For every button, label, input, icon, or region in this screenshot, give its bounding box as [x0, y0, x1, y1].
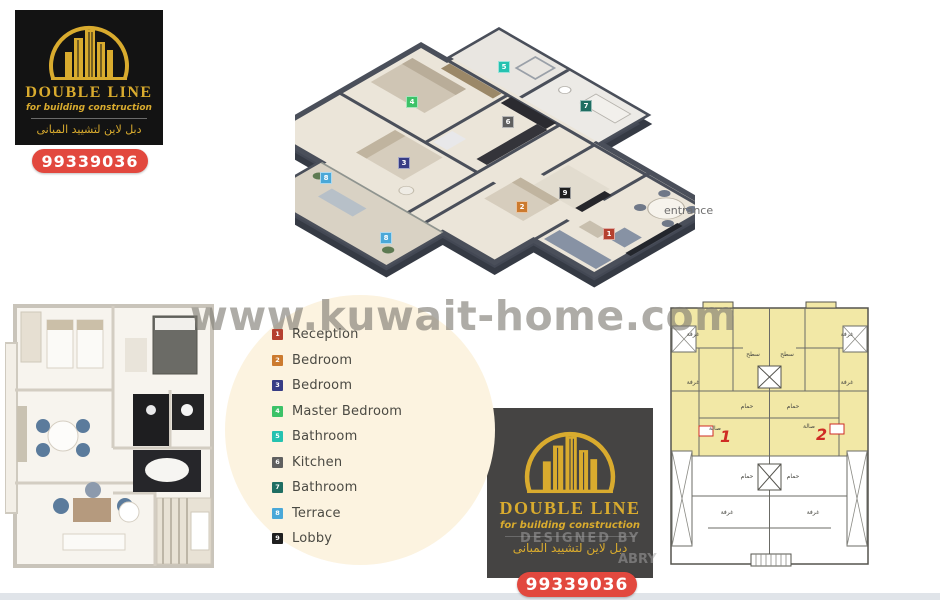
legend-swatch-3: 3 — [272, 380, 283, 391]
legend-swatch-5: 5 — [272, 431, 283, 442]
divider — [31, 118, 146, 119]
stairs — [157, 498, 211, 564]
brand-tagline: for building construction — [26, 103, 152, 113]
legend-item-bathroom-7: 7 Bathroom — [272, 482, 402, 494]
room-badge-master-bedroom: 4 — [406, 96, 418, 108]
brand-logo-top: DOUBLE LINE for building construction دب… — [15, 10, 163, 145]
unit-number-1: 1 — [720, 427, 731, 446]
legend-swatch-1: 1 — [272, 329, 283, 340]
svg-text:صالة: صالة — [709, 425, 721, 432]
svg-text:غرفة: غرفة — [841, 331, 854, 338]
unit2-stamp — [830, 424, 844, 434]
balcony-strip — [5, 343, 17, 513]
skyline-icon-2 — [518, 420, 622, 496]
svg-text:حمام: حمام — [787, 473, 800, 480]
brand-name: DOUBLE LINE — [25, 84, 152, 102]
room-badge-bathroom-5: 5 — [498, 61, 510, 73]
legend-item-reception: 1 Reception — [272, 329, 402, 341]
phone-number-bottom: 99339036 — [517, 572, 637, 597]
legend-swatch-6: 6 — [272, 457, 283, 468]
room-badge-bedroom-3: 3 — [398, 157, 410, 169]
bottom-edge-strip — [0, 593, 940, 600]
room-badge-kitchen: 6 — [502, 116, 514, 128]
svg-text:حمام: حمام — [741, 473, 754, 480]
svg-text:حمام: حمام — [741, 403, 754, 410]
designer-watermark-line2: ABRY — [618, 552, 657, 567]
legend-item-kitchen: 6 Kitchen — [272, 457, 402, 469]
legend-label-6: Kitchen — [292, 455, 342, 470]
room-badge-lobby: 9 — [559, 187, 571, 199]
legend-label-9: Lobby — [292, 531, 332, 546]
legend-label-3: Bedroom — [292, 378, 352, 393]
legend-item-terrace: 8 Terrace — [272, 508, 402, 520]
legend-item-lobby: 9 Lobby — [272, 533, 402, 545]
legend-item-bedroom-3: 3 Bedroom — [272, 380, 402, 392]
svg-text:غرفة: غرفة — [807, 509, 820, 516]
svg-text:حمام: حمام — [787, 403, 800, 410]
svg-text:سطح: سطح — [780, 351, 794, 358]
legend-label-2: Bedroom — [292, 353, 352, 368]
legend-item-bathroom-5: 5 Bathroom — [272, 431, 402, 443]
legend-label-8: Terrace — [292, 506, 341, 521]
legend-swatch-7: 7 — [272, 482, 283, 493]
phone-number-top: 99339036 — [32, 149, 148, 173]
unit-number-2: 2 — [816, 425, 827, 444]
svg-text:غرفة: غرفة — [721, 509, 734, 516]
legend-label-4: Master Bedroom — [292, 404, 402, 419]
legend-label-1: Reception — [292, 327, 359, 342]
skyline-icon — [43, 16, 135, 82]
legend-item-bedroom-2: 2 Bedroom — [272, 355, 402, 367]
svg-text:سطح: سطح — [746, 351, 760, 358]
legend-label-7: Bathroom — [292, 480, 357, 495]
room-badge-terrace: 8 — [320, 172, 332, 184]
twin-bedroom — [21, 312, 103, 368]
legend-swatch-8: 8 — [272, 508, 283, 519]
room-badge-bathroom-7: 7 — [580, 100, 592, 112]
flyer: DOUBLE LINE for building construction دب… — [0, 0, 940, 600]
svg-text:غرفة: غرفة — [687, 379, 700, 386]
room-badge-bedroom-2: 2 — [516, 201, 528, 213]
brand-tagline-2: for building construction — [500, 520, 640, 531]
legend-swatch-9: 9 — [272, 533, 283, 544]
entrance-label: entrance — [664, 204, 713, 217]
top-view-floor-plan — [5, 298, 233, 598]
room-badge-reception: 1 — [603, 228, 615, 240]
room-badge-terrace-2: 8 — [380, 232, 392, 244]
legend-swatch-2: 2 — [272, 355, 283, 366]
brand-name-2: DOUBLE LINE — [499, 498, 640, 519]
isometric-floor-plan — [295, 0, 695, 302]
legend-label-5: Bathroom — [292, 429, 357, 444]
brand-tagline-arabic: دبل لاين لتشييد المبانى — [36, 123, 141, 136]
svg-text:غرفة: غرفة — [841, 379, 854, 386]
legend-swatch-4: 4 — [272, 406, 283, 417]
svg-text:صالة: صالة — [803, 423, 815, 430]
legend-item-master-bedroom: 4 Master Bedroom — [272, 406, 402, 418]
room-legend: 1 Reception 2 Bedroom 3 Bedroom 4 Master… — [272, 329, 402, 545]
designer-watermark-line1: DESIGNED BY — [520, 531, 640, 546]
